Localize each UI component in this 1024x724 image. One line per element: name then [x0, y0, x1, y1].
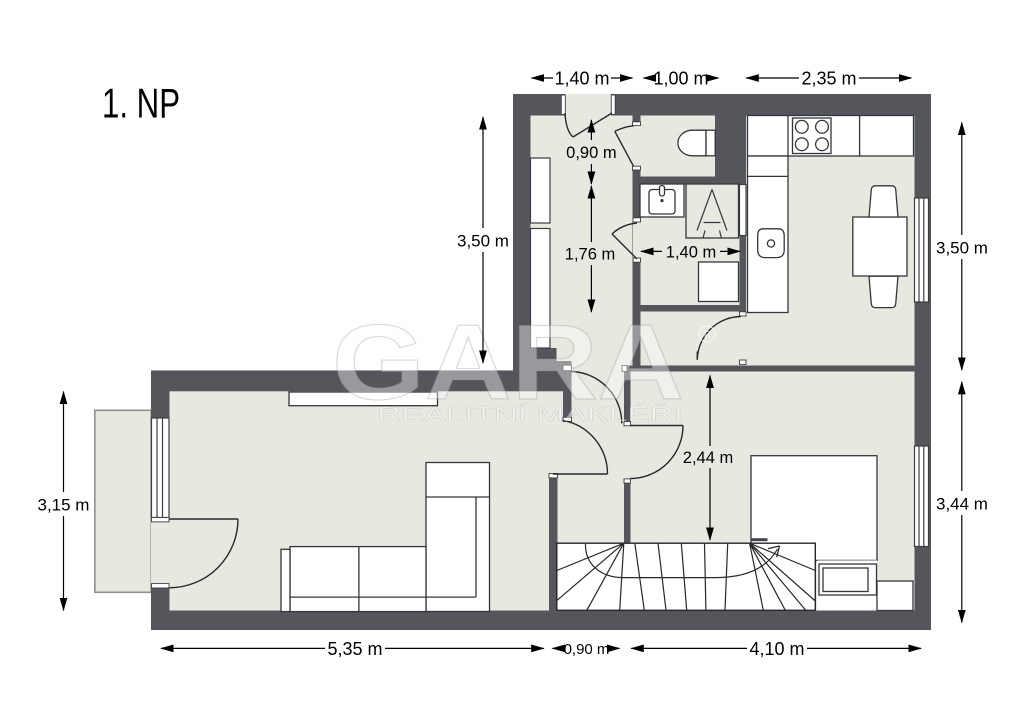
svg-text:4,10 m: 4,10 m — [749, 639, 804, 659]
svg-text:1,40 m: 1,40 m — [666, 244, 716, 262]
svg-text:R: R — [704, 329, 712, 341]
svg-text:3,15 m: 3,15 m — [38, 496, 90, 515]
svg-text:2,44 m: 2,44 m — [683, 449, 733, 467]
svg-text:1,76 m: 1,76 m — [565, 246, 615, 264]
svg-text:0,90 m: 0,90 m — [564, 641, 610, 658]
svg-text:1,00 m: 1,00 m — [653, 69, 708, 89]
svg-text:0,90 m: 0,90 m — [566, 144, 616, 162]
svg-text:1,40 m: 1,40 m — [554, 69, 609, 89]
svg-text:5,35 m: 5,35 m — [327, 639, 382, 659]
svg-text:3,50 m: 3,50 m — [457, 232, 509, 251]
svg-text:3,50 m: 3,50 m — [936, 239, 988, 258]
svg-text:2,35 m: 2,35 m — [801, 69, 856, 89]
svg-text:1. NP: 1. NP — [102, 80, 180, 127]
svg-text:REALITNÍ MAKLÉŘI: REALITNÍ MAKLÉŘI — [377, 403, 683, 426]
svg-text:3,44 m: 3,44 m — [936, 495, 988, 514]
